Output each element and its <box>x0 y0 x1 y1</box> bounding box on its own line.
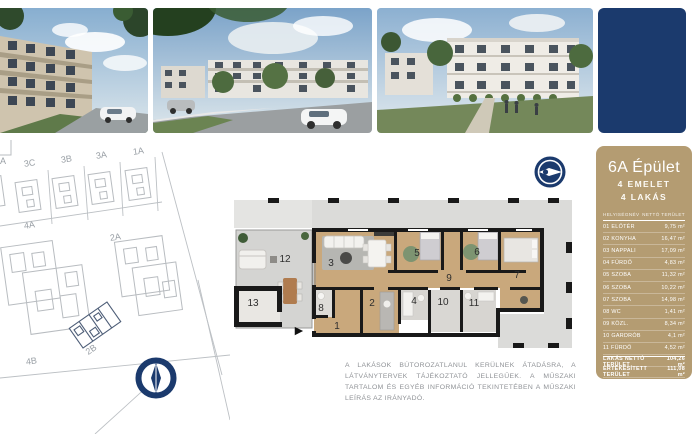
table-row-total: ÉRTÉKESÍTETT TERÜLET111,08 m² <box>603 367 685 377</box>
site-label-4a: 4A <box>23 219 35 230</box>
table-row: 08 WC1,41 m² <box>603 306 685 318</box>
room-label: 06 SZOBA <box>603 285 631 291</box>
table-row: 01 ELŐTÉR9,75 m² <box>603 221 685 233</box>
building-floor-label: 4 EMELET <box>603 178 685 191</box>
room-area: 4,83 m² <box>665 260 685 266</box>
table-row: 09 KÖZL.8,34 m² <box>603 319 685 331</box>
table-row: 12 TETŐTERASZ24,62 m² <box>603 378 685 388</box>
table-row: 13 TÁROLÓ3,85 m² <box>603 388 685 398</box>
room-number-7: 7 <box>514 270 520 281</box>
building-info-sidebar: 6A Épület 4 EMELET 4 LAKÁS HELYISÉGNÉV N… <box>596 146 692 379</box>
room-number-5: 5 <box>414 248 420 259</box>
room-number-13: 13 <box>247 298 259 309</box>
table-row: 05 SZOBA11,32 m² <box>603 270 685 282</box>
room-label: 13 TÁROLÓ <box>603 390 635 396</box>
room-area: 8,34 m² <box>665 321 685 327</box>
room-number-12: 12 <box>279 254 291 265</box>
room-label: 08 WC <box>603 309 621 315</box>
room-area: 24,62 m² <box>661 380 685 386</box>
building-title: 6A Épület <box>603 158 685 178</box>
room-label: 05 SZOBA <box>603 272 631 278</box>
building-render-photo-1 <box>0 8 148 133</box>
room-number-4: 4 <box>411 296 417 307</box>
room-number-11: 11 <box>469 298 480 309</box>
site-label-3c: 3C <box>23 157 36 169</box>
total-label: ÉRTÉKESÍTETT TERÜLET <box>603 366 663 378</box>
room-number-3: 3 <box>328 258 334 269</box>
building-render-photo-3 <box>377 8 593 133</box>
area-table-header: HELYISÉGNÉV NETTÓ TERÜLET <box>603 212 685 221</box>
north-compass-icon <box>135 357 177 399</box>
room-label: 01 ELŐTÉR <box>603 224 635 230</box>
room-area: 10,22 m² <box>661 285 685 291</box>
room-area: 14,98 m² <box>661 297 685 303</box>
room-label: 04 FÜRDŐ <box>603 260 632 266</box>
table-row: 03 NAPPALI17,09 m² <box>603 245 685 257</box>
table-row: 11 FÜRDŐ4,52 m² <box>603 343 685 355</box>
room-number-1: 1 <box>334 321 340 332</box>
room-label: 09 KÖZL. <box>603 321 628 327</box>
table-row: 02 KONYHA16,47 m² <box>603 233 685 245</box>
site-label-1a: 1A <box>132 145 144 156</box>
building-units-label: 4 LAKÁS <box>603 191 685 204</box>
room-area: 16,47 m² <box>661 236 685 242</box>
table-row: 10 GARDRÓB4,1 m² <box>603 331 685 343</box>
table-row: 06 SZOBA10,22 m² <box>603 282 685 294</box>
room-area: 3,85 m² <box>665 390 685 396</box>
room-number-10: 10 <box>437 297 449 308</box>
room-number-8: 8 <box>318 303 324 314</box>
room-area: 17,09 m² <box>661 248 685 254</box>
site-label-partial: A <box>0 156 6 166</box>
site-label-4b: 4B <box>25 355 37 366</box>
room-label: 10 GARDRÓB <box>603 333 641 339</box>
disclaimer-text: A LAKÁSOK BÚTOROZATLANUL KERÜLNEK ÁTADÁS… <box>345 361 576 405</box>
navy-color-block <box>598 8 686 133</box>
site-label-3a: 3A <box>95 149 107 160</box>
table-row: 04 FÜRDŐ4,83 m² <box>603 258 685 270</box>
view-direction-icon <box>533 155 567 189</box>
site-label-3b: 3B <box>60 153 72 164</box>
building-render-photo-2 <box>153 8 372 133</box>
col-area-header: NETTÓ TERÜLET <box>642 212 685 217</box>
room-number-2: 2 <box>369 298 375 309</box>
room-label: 03 NAPPALI <box>603 248 636 254</box>
room-area: 4,52 m² <box>665 345 685 351</box>
site-label-2a: 2A <box>109 231 121 242</box>
room-number-9: 9 <box>446 273 452 284</box>
room-label: 12 TETŐTERASZ <box>603 380 650 386</box>
entrance-arrow-icon: ► <box>292 322 306 338</box>
room-area: 4,1 m² <box>668 333 685 339</box>
table-row: 07 SZOBA14,98 m² <box>603 294 685 306</box>
room-area: 9,75 m² <box>665 224 685 230</box>
room-label: 02 KONYHA <box>603 236 636 242</box>
area-table: HELYISÉGNÉV NETTÓ TERÜLET 01 ELŐTÉR9,75 … <box>603 212 685 399</box>
room-label: 11 FÜRDŐ <box>603 345 632 351</box>
room-number-6: 6 <box>474 247 480 258</box>
room-area: 1,41 m² <box>665 309 685 315</box>
total-area: 111,08 m² <box>663 366 685 378</box>
site-plan: A 3C 3B 3A 1A 4A 2A 2B 4B <box>0 140 230 434</box>
col-room-header: HELYISÉGNÉV <box>603 212 639 217</box>
room-label: 07 SZOBA <box>603 297 631 303</box>
floor-plan: 1 2 3 4 5 6 7 8 9 10 11 12 13 ► <box>228 192 580 360</box>
room-area: 11,32 m² <box>662 272 685 278</box>
